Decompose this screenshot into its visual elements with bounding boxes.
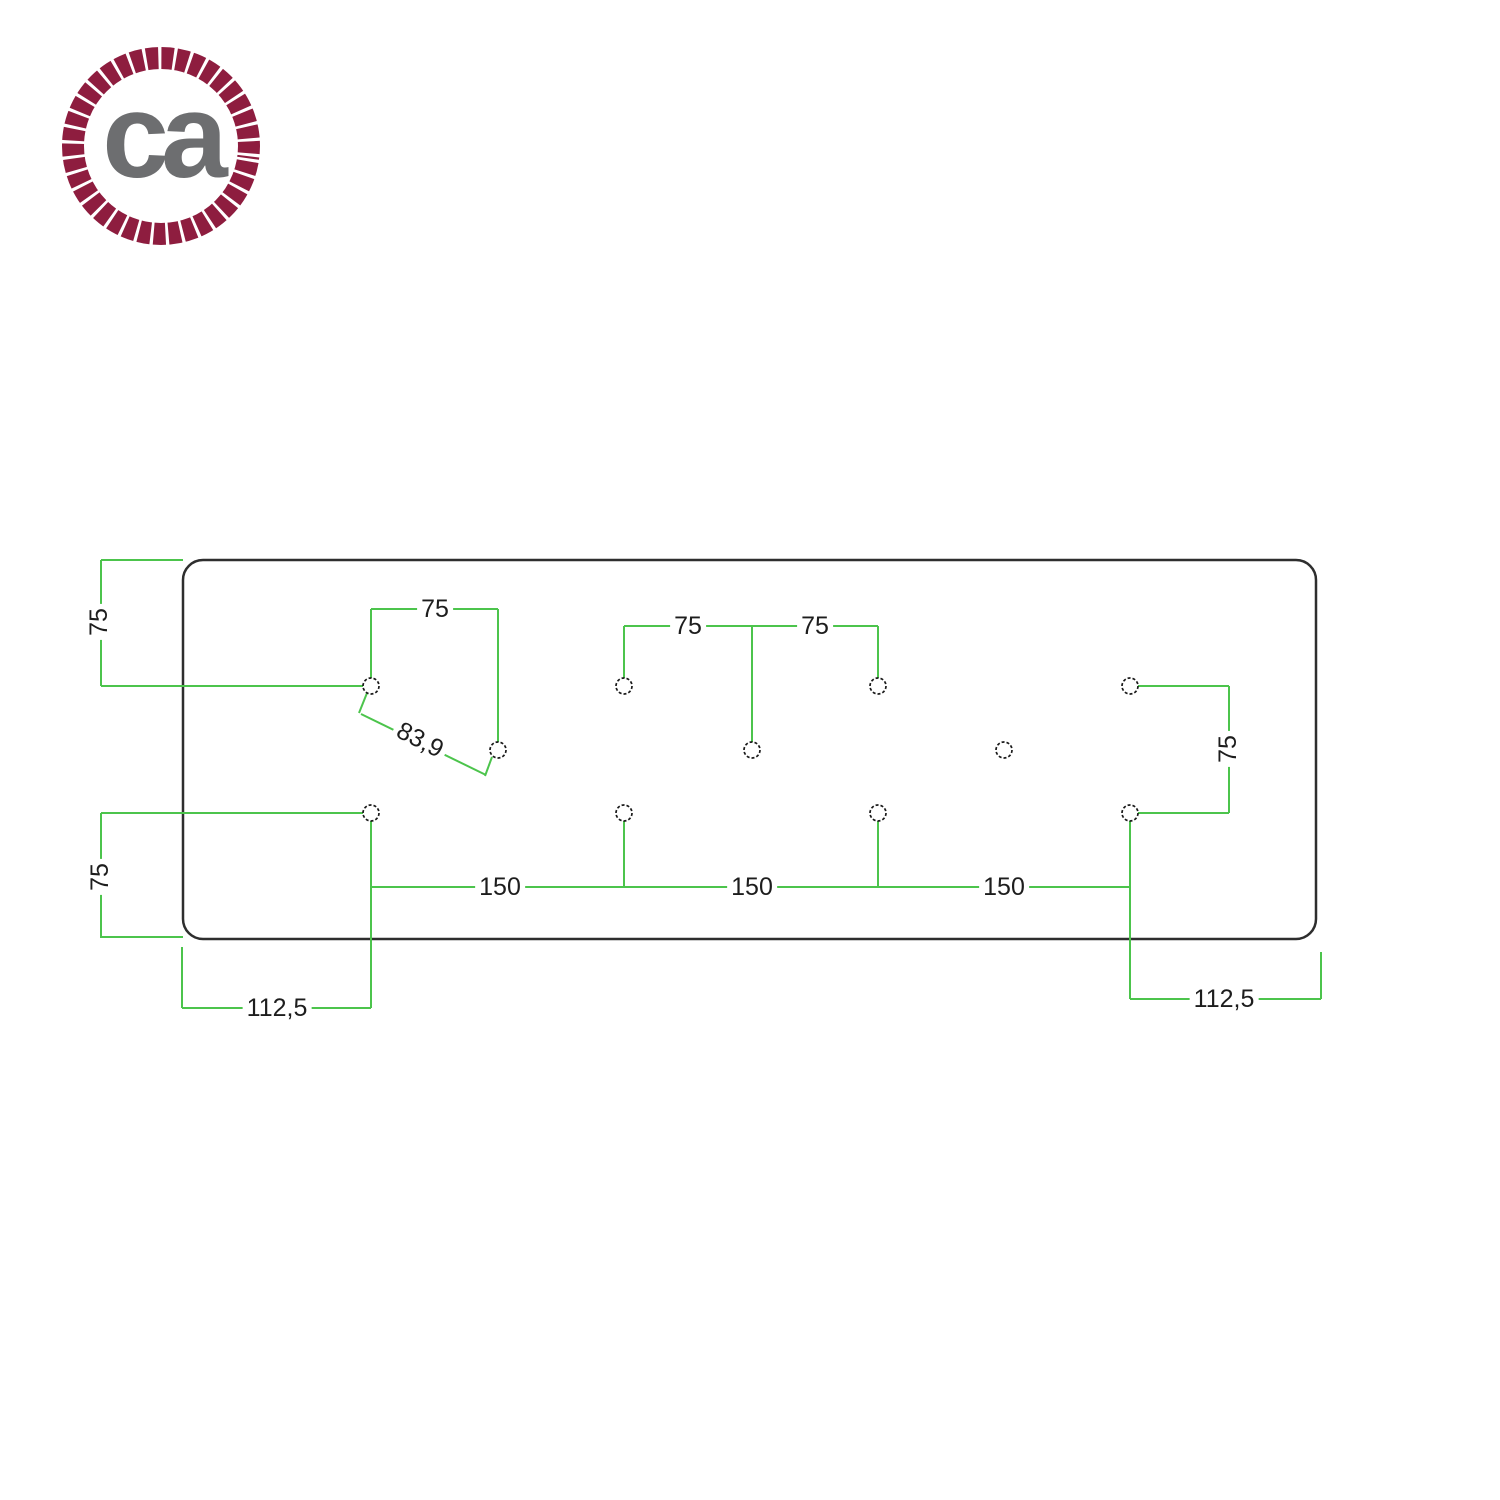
dim-75-center-left: 75	[670, 613, 706, 639]
dim-112-5-right: 112,5	[1190, 986, 1259, 1012]
dim-150-left: 150	[475, 874, 525, 900]
dim-75-left-top: 75	[86, 604, 112, 640]
dim-150-center: 150	[727, 874, 777, 900]
dim-75-top-first: 75	[417, 596, 453, 622]
dim-150-right: 150	[979, 874, 1029, 900]
product-drawing-page: ca 757575757583,975150150150112,5112,5	[0, 0, 1500, 1500]
dim-75-center-right: 75	[797, 613, 833, 639]
dim-83-9-diagonal: 83,9	[389, 715, 451, 764]
dim-112-5-left: 112,5	[243, 995, 312, 1021]
dimension-labels: 757575757583,975150150150112,5112,5	[0, 0, 1500, 1500]
dim-75-left-bottom: 75	[87, 859, 113, 895]
dim-75-right: 75	[1215, 731, 1241, 767]
